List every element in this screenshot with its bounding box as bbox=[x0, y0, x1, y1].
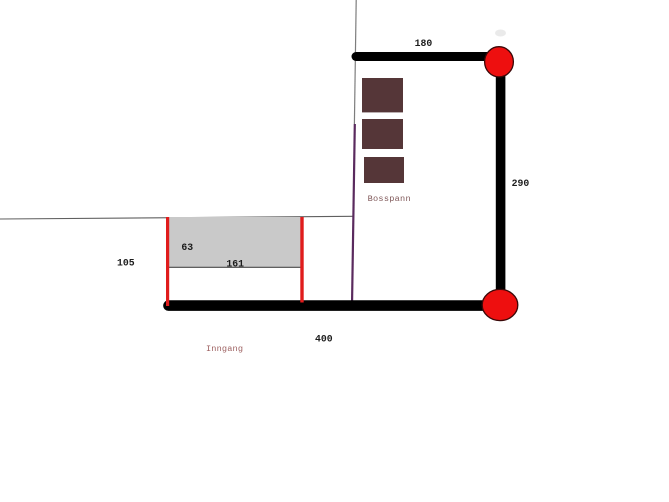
svg-text:400: 400 bbox=[315, 333, 333, 344]
svg-text:105: 105 bbox=[117, 257, 135, 268]
svg-text:Bosspann: Bosspann bbox=[368, 194, 411, 204]
svg-text:Inngang: Inngang bbox=[206, 344, 243, 354]
svg-text:161: 161 bbox=[226, 258, 244, 269]
svg-text:63: 63 bbox=[181, 242, 193, 253]
svg-text:180: 180 bbox=[415, 38, 433, 49]
svg-text:290: 290 bbox=[512, 178, 530, 189]
